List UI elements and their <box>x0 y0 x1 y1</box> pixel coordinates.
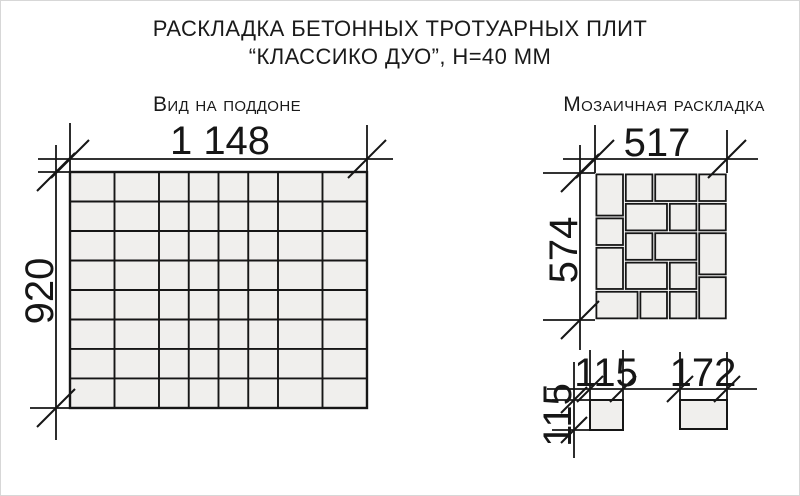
mosaic-tile <box>626 174 653 201</box>
drawing-page: РАСКЛАДКА БЕТОННЫХ ТРОТУАРНЫХ ПЛИТ “КЛАС… <box>0 0 800 496</box>
mosaic-tile <box>670 292 697 319</box>
mosaic-tile <box>699 233 726 274</box>
rect-width-label: 172 <box>670 351 737 395</box>
mosaic-tile <box>640 292 667 319</box>
mosaic-tile <box>626 263 667 289</box>
pallet-height-label: 920 <box>18 258 62 325</box>
mosaic-tile <box>699 174 726 201</box>
mosaic-tile <box>596 248 623 289</box>
single-tile-rect <box>680 400 727 429</box>
square-width-label: 115 <box>574 351 638 395</box>
mosaic-tile <box>596 292 637 319</box>
mosaic-width-label: 517 <box>624 121 691 165</box>
mosaic-tile <box>626 233 653 260</box>
mosaic-tile <box>655 233 696 260</box>
single-tiles <box>590 400 727 430</box>
mosaic-tile <box>670 204 697 231</box>
mosaic-pattern <box>596 174 725 318</box>
technical-drawing: 1 148920517574115172115 <box>0 0 800 496</box>
mosaic-height-label: 574 <box>542 217 586 284</box>
mosaic-tile <box>670 263 697 289</box>
mosaic-tile <box>699 277 726 318</box>
square-height-label: 115 <box>536 383 580 447</box>
mosaic-tile <box>596 174 623 215</box>
mosaic-tile <box>655 174 696 201</box>
pallet-grid <box>70 172 367 408</box>
single-tile-square <box>590 400 623 430</box>
mosaic-tile <box>699 204 726 231</box>
mosaic-tile <box>626 204 667 231</box>
mosaic-tile <box>596 218 623 245</box>
pallet-width-label: 1 148 <box>170 119 270 163</box>
